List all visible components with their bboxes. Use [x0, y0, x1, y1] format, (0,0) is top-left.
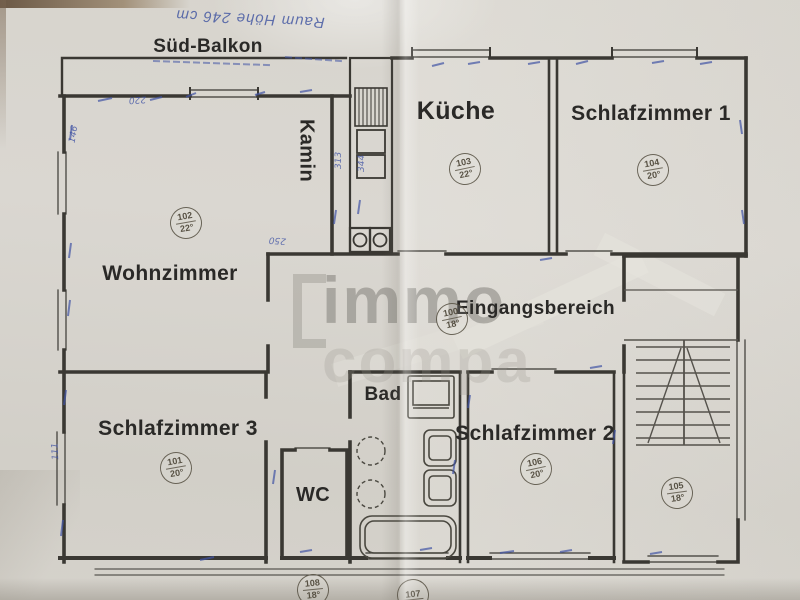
measurement: 146: [68, 125, 81, 144]
label-wc: WC: [288, 485, 338, 506]
measurement: 344: [357, 155, 367, 172]
measurement: 111: [50, 443, 61, 461]
label-kamin: Kamin: [296, 96, 317, 206]
dashed-circle-fixture: [357, 480, 385, 508]
label-schlafzimmer-1: Schlafzimmer 1: [566, 103, 736, 125]
label-eingangsbereich: Eingangsbereich: [453, 299, 618, 319]
label-kueche: Küche: [406, 98, 506, 124]
floorplan-photo: 220 146 313 344 250 111 immo compa Raum …: [0, 0, 800, 600]
label-wohnzimmer: Wohnzimmer: [100, 263, 240, 285]
measurement: 250: [268, 234, 286, 245]
measurement: 313: [334, 152, 344, 169]
label-bad: Bad: [353, 385, 413, 405]
label-schlafzimmer-3: Schlafzimmer 3: [98, 418, 258, 440]
staircase: [624, 290, 738, 445]
dashed-circle-fixture: [357, 437, 385, 465]
bathtub: [360, 516, 456, 558]
label-schlafzimmer-2: Schlafzimmer 2: [455, 423, 615, 445]
measurement: 220: [128, 94, 146, 105]
label-sued-balkon: Süd-Balkon: [148, 37, 268, 57]
